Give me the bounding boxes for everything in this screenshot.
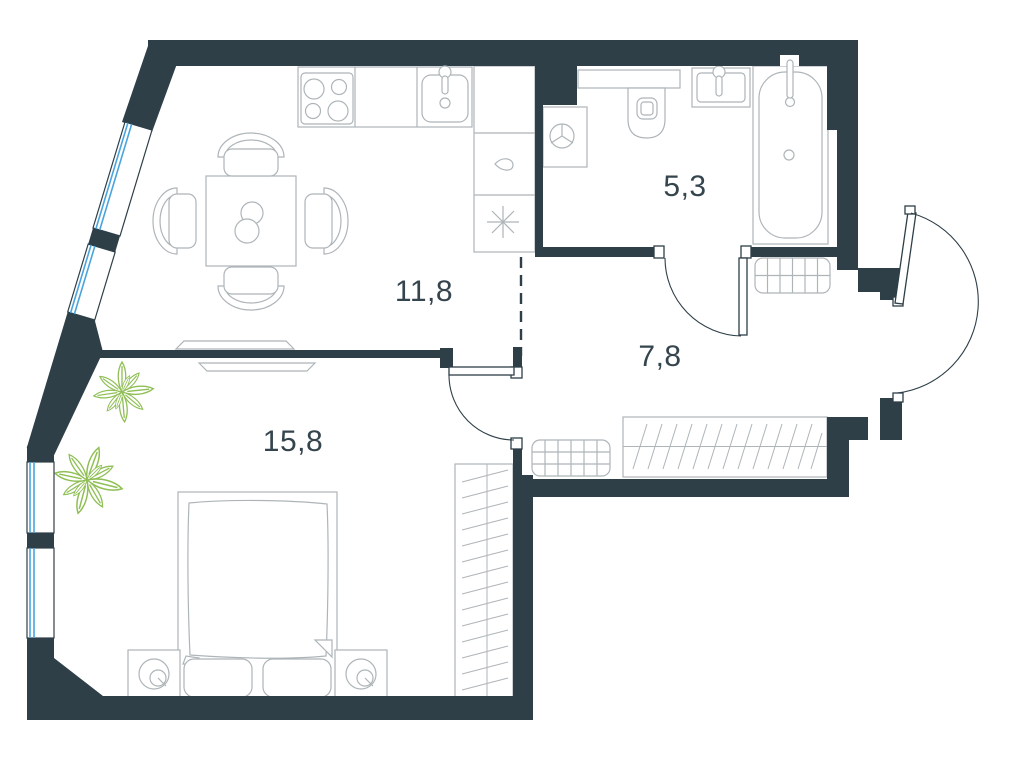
door-jamb	[741, 246, 751, 258]
door-jamb	[654, 246, 664, 258]
floor-plan-page: 11,8 5,3 7,8 15,8	[0, 0, 1024, 768]
plant-1	[93, 362, 153, 422]
door-jamb	[893, 393, 903, 402]
bedroom-door	[449, 367, 522, 449]
door-swing-arc	[665, 258, 741, 336]
wall-closet-side	[513, 475, 533, 720]
wall-window-mullion-v	[27, 533, 54, 548]
wall-kitchen-bath	[535, 105, 543, 252]
chair-bottom	[218, 267, 284, 310]
wall-jog-block	[535, 65, 577, 105]
pillow-left	[184, 659, 252, 697]
wall-bath-bottom-right	[750, 247, 837, 257]
bathroom-sink-icon	[692, 66, 750, 107]
entry-door	[893, 206, 978, 402]
bathroom-door	[654, 246, 751, 336]
wall-end-block	[440, 348, 453, 368]
closet	[455, 464, 513, 698]
window-bedroom-2	[27, 548, 54, 638]
wall-window-sill-top	[27, 446, 54, 462]
toilet-shelf	[578, 70, 680, 88]
wall-slant-top	[122, 40, 182, 132]
door-leaf	[895, 212, 916, 304]
wall-right-mid	[837, 130, 858, 270]
wall-bath-bottom-left	[535, 247, 655, 257]
plant-2	[44, 436, 133, 525]
nightstand-left	[128, 650, 180, 698]
radiator-grid	[755, 258, 830, 293]
door-leaf	[739, 258, 747, 335]
room-label-bedroom: 15,8	[263, 425, 323, 458]
door-leaf-cap	[905, 206, 915, 214]
room-label-kitchen: 11,8	[395, 275, 453, 308]
chair-top	[218, 133, 284, 176]
chair-right	[305, 188, 348, 254]
room-label-hallway: 7,8	[638, 340, 681, 373]
wall-below-bedroom-door	[513, 446, 522, 480]
chair-left	[153, 188, 196, 254]
wall-right-upper	[827, 66, 858, 130]
floor-plan: 11,8 5,3 7,8 15,8	[0, 0, 1024, 768]
blanket	[188, 500, 328, 658]
dining-table	[206, 176, 296, 266]
furniture-layer	[128, 66, 830, 700]
pillow-right	[263, 659, 331, 697]
door-leaf	[449, 367, 514, 375]
window-bedroom-1	[27, 462, 54, 533]
wall-bedroom-bottom	[27, 696, 533, 720]
door-swing-arc	[449, 375, 514, 440]
shoe-grid	[532, 440, 610, 476]
wall-hallway-bottom	[533, 479, 849, 497]
wall-slant-bottom	[27, 312, 103, 456]
wall-entry-step-c	[880, 398, 902, 440]
wall-top	[148, 40, 858, 66]
room-label-bathroom: 5,3	[663, 170, 706, 203]
nightstand-right	[335, 650, 387, 698]
wardrobe	[623, 417, 827, 477]
bathtub-faucet-icon	[787, 60, 793, 98]
bed	[178, 492, 337, 700]
wall-entry-step-a	[858, 268, 902, 292]
tv-console-bedroom	[199, 363, 315, 371]
washing-machine-icon	[543, 107, 587, 167]
wall-kitchen-bedroom	[95, 350, 453, 358]
kitchen-counter	[298, 66, 535, 252]
toilet-icon	[628, 88, 665, 138]
tv-console-kitchen	[176, 341, 294, 349]
